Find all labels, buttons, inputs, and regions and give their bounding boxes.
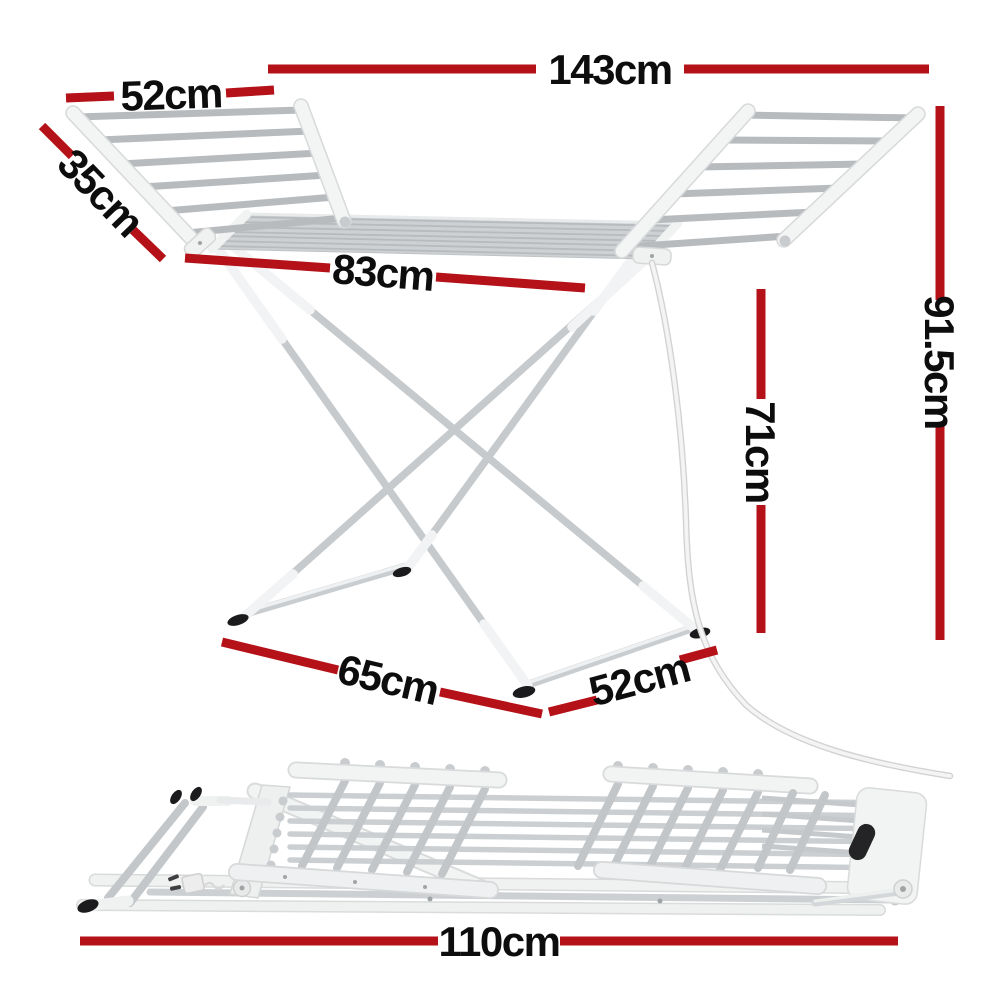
x-frame-legs [214, 237, 696, 686]
dim-base-length-label: 65cm [333, 645, 442, 714]
dim-folded-length-label: 110cm [439, 918, 560, 965]
dim-base-width: 52cm [549, 644, 717, 716]
diagram-stage: 143cm 52cm 35cm 83cm 91.5cm 71cm [0, 0, 1000, 1000]
dim-wing-width-label: 52cm [120, 69, 223, 120]
dim-folded-length: 110cm [80, 918, 898, 965]
dim-base-width-label: 52cm [584, 644, 694, 716]
dim-rail-height-label: 71cm [737, 401, 784, 502]
dim-center-width-label: 83cm [331, 245, 436, 300]
dim-total-width-label: 143cm [548, 46, 671, 93]
dim-total-width: 143cm [268, 46, 929, 93]
dim-base-length: 65cm [222, 642, 542, 714]
power-cable [652, 263, 950, 776]
dim-overall-height: 91.5cm [916, 106, 963, 640]
folded-airer [76, 758, 928, 915]
standing-airer [73, 106, 950, 776]
dim-overall-height-label: 91.5cm [916, 295, 963, 428]
dim-rail-height: 71cm [737, 289, 784, 633]
airer-dimensions-diagram: 143cm 52cm 35cm 83cm 91.5cm 71cm [0, 0, 1000, 1000]
